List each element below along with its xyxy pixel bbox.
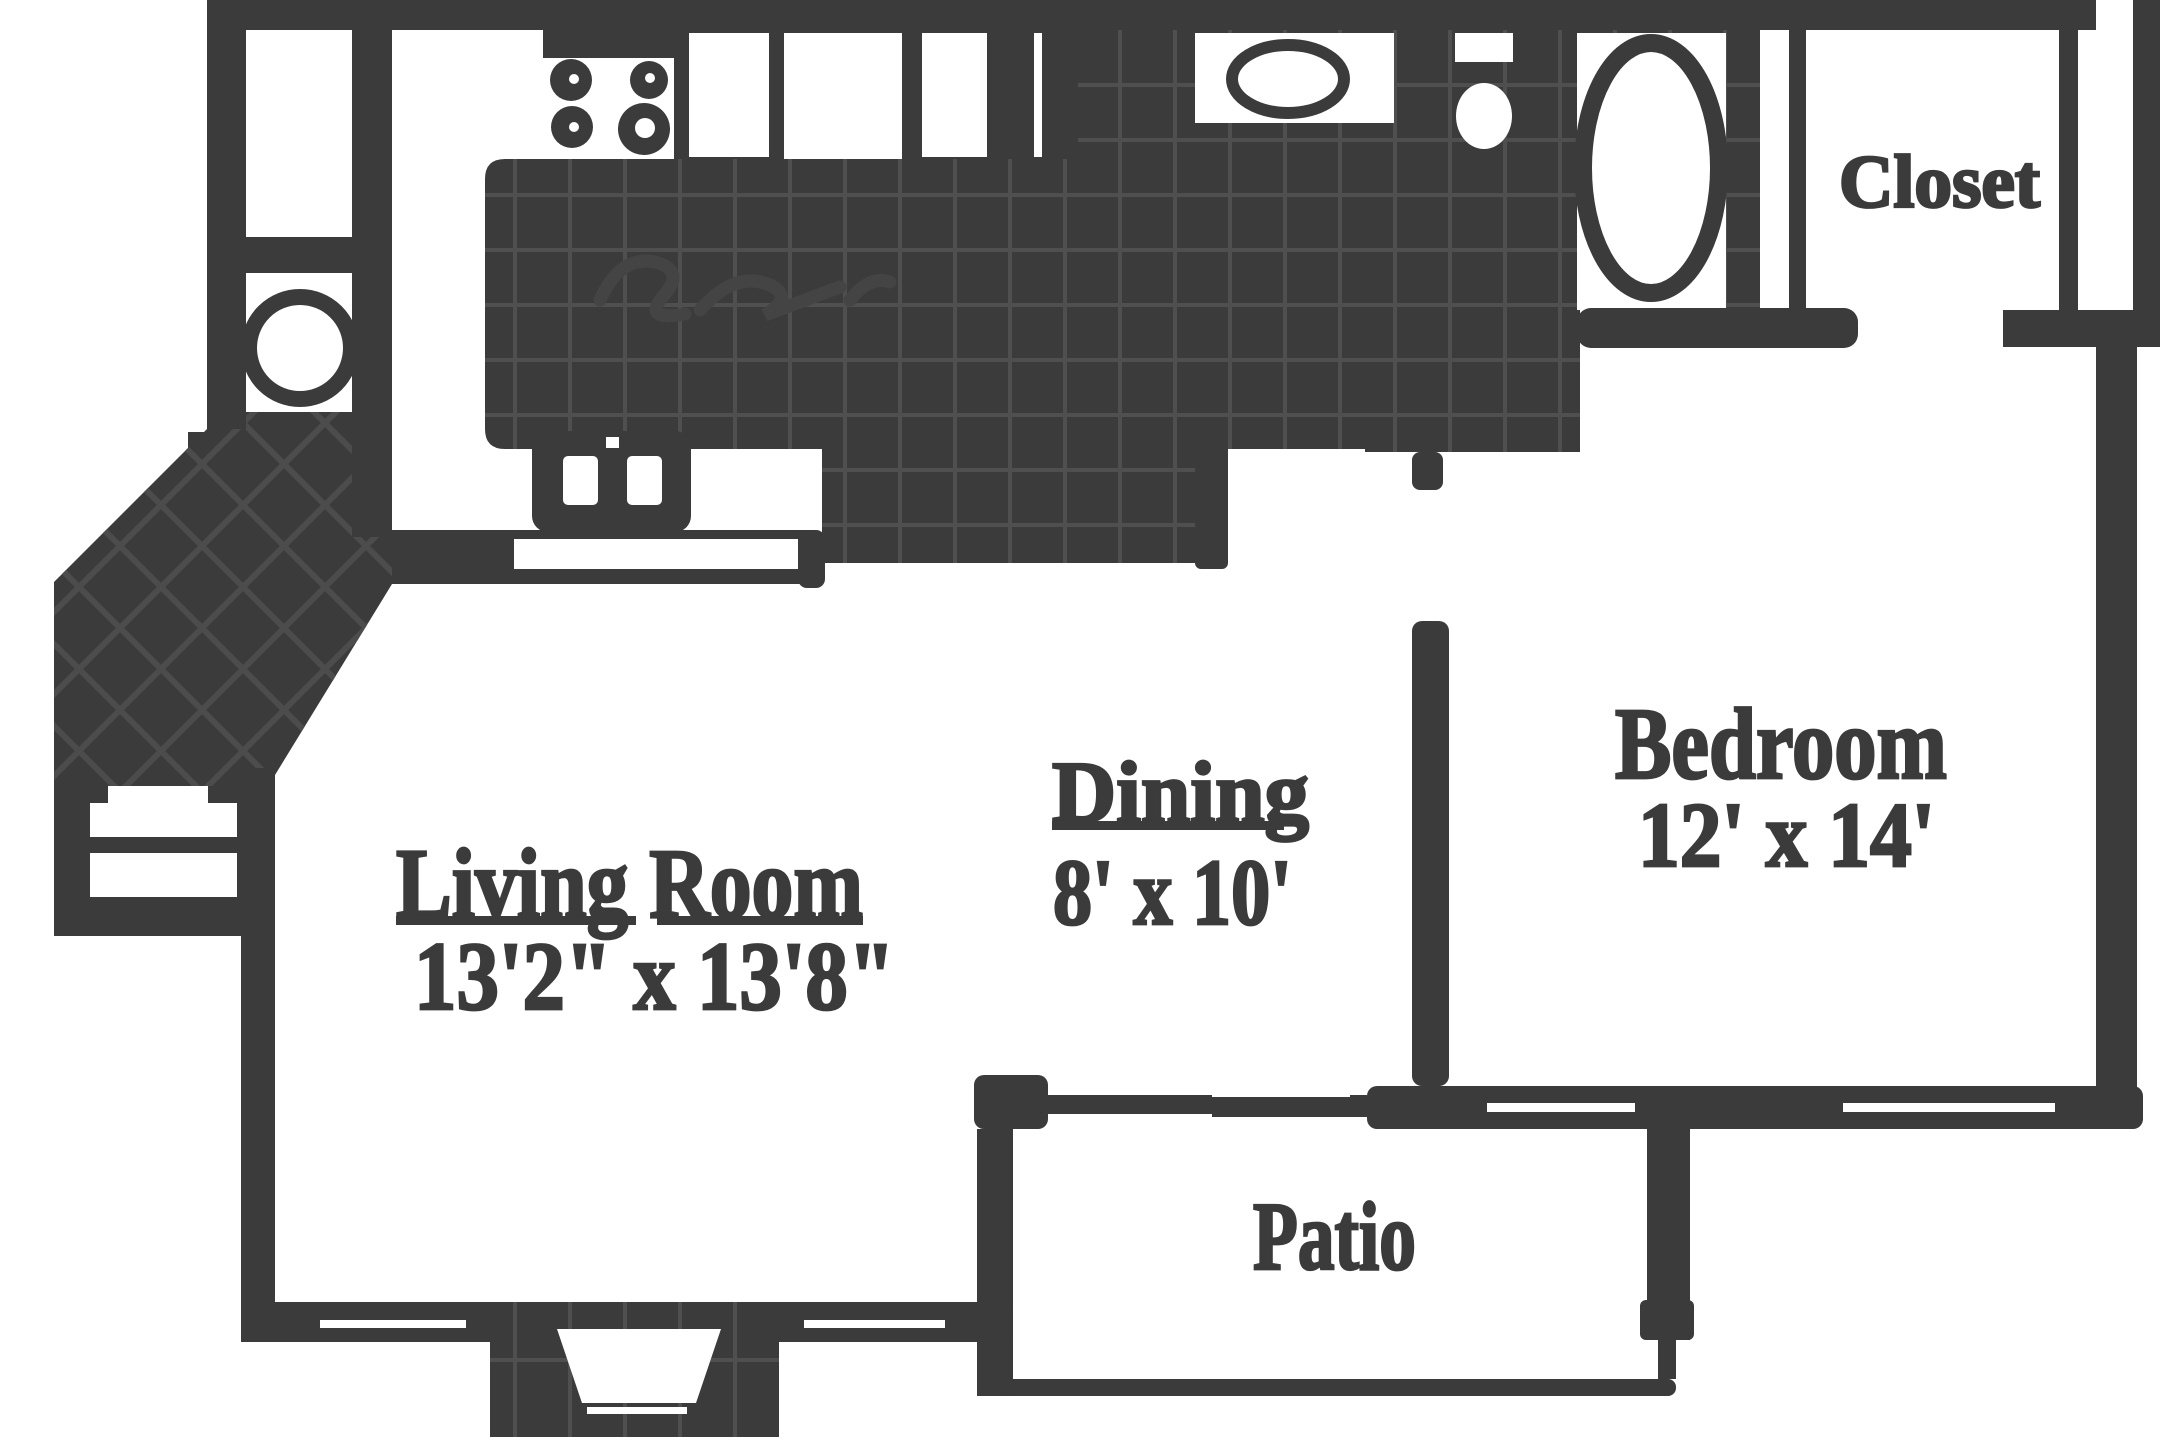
- svg-text:8' x 10': 8' x 10': [1053, 841, 1292, 945]
- svg-text:12' x 14': 12' x 14': [1638, 784, 1935, 886]
- svg-text:Patio: Patio: [1253, 1183, 1416, 1290]
- svg-text:13'2" x 13'8": 13'2" x 13'8": [414, 923, 895, 1031]
- svg-text:Closet: Closet: [1839, 141, 2040, 224]
